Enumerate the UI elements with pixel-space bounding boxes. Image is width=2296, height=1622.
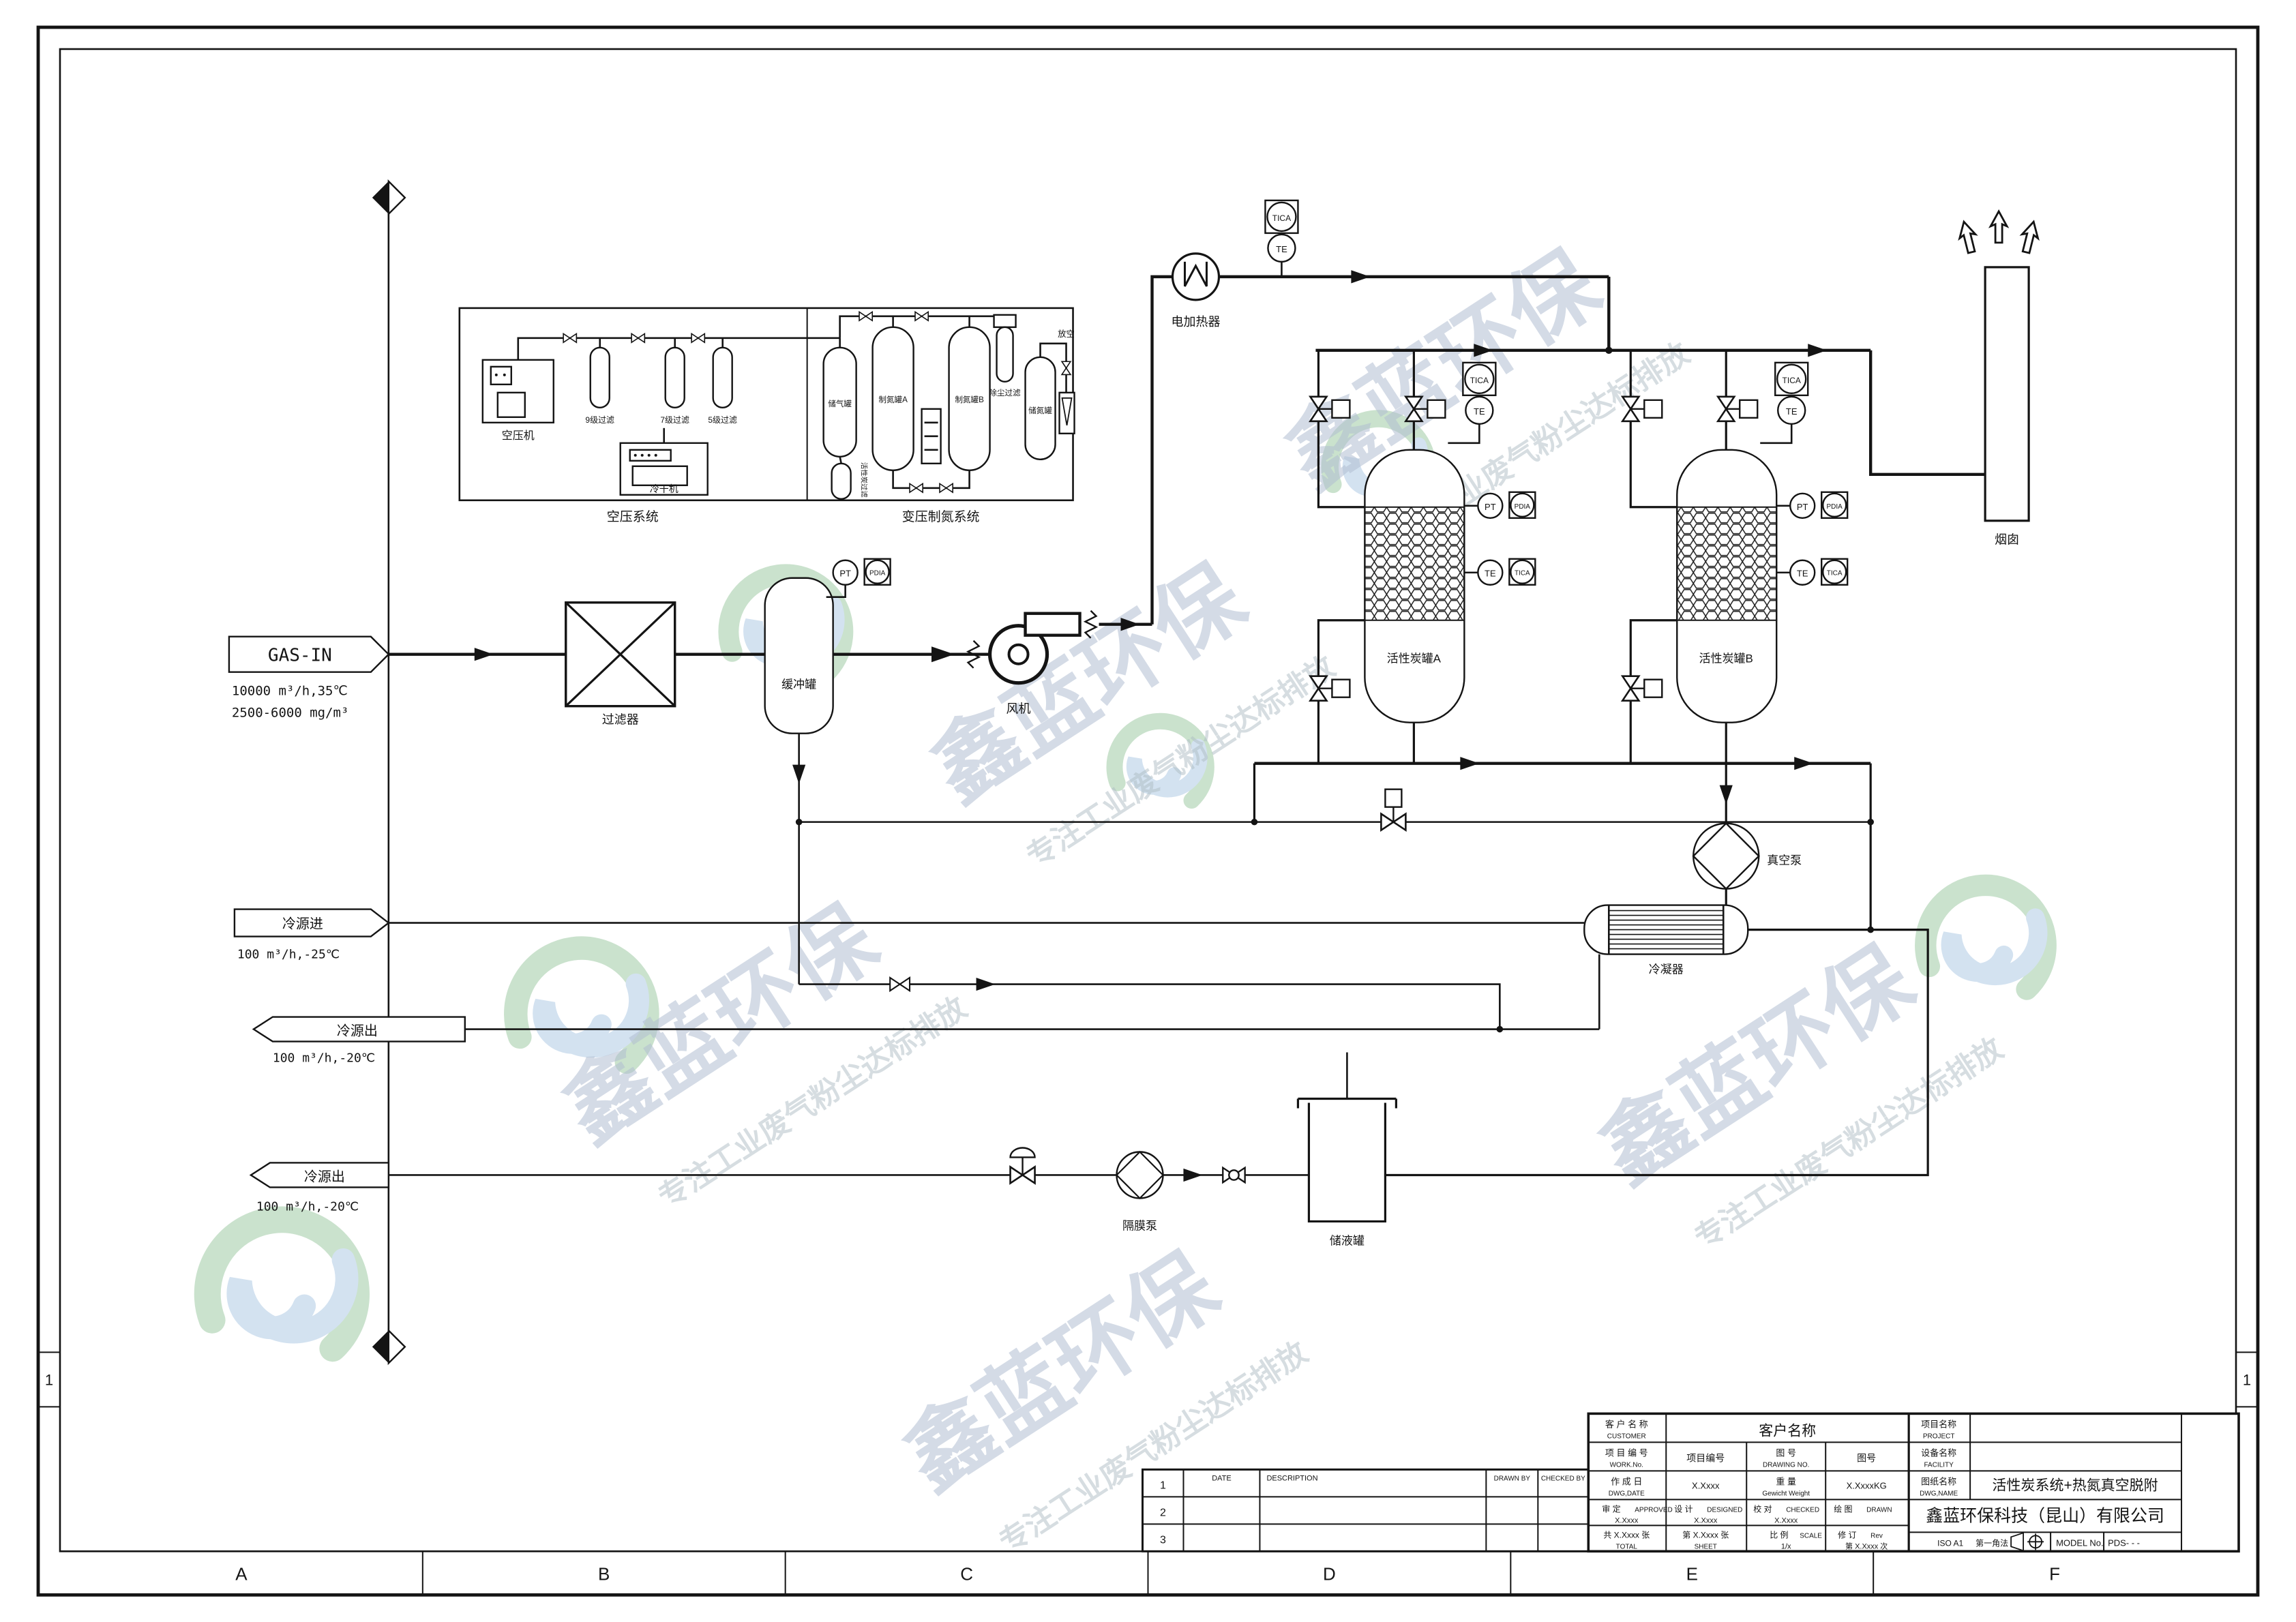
tb-approved-cn: 审 定: [1602, 1503, 1620, 1514]
tb-dwg-name-en: DWG,NAME: [1920, 1490, 1958, 1497]
tank-a-pdia-tag: PDIA: [1515, 503, 1531, 511]
tb-total-en: TOTAL: [1616, 1543, 1638, 1550]
rev-header-date: DATE: [1212, 1474, 1231, 1482]
buffer-pdia-tag: PDIA: [869, 570, 886, 577]
stack-symbol: [1985, 267, 2029, 521]
filter-symbol: [566, 603, 675, 706]
tb-model-label: MODEL No.: [2056, 1537, 2104, 1548]
tb-weight-cn: 重 量: [1776, 1476, 1796, 1486]
heater-symbol: [1172, 254, 1219, 300]
vacuum-pump-symbol: [1693, 824, 1759, 889]
grid-column-f: F: [2049, 1563, 2060, 1584]
tb-drawing-no-en: DRAWING NO.: [1763, 1461, 1809, 1469]
tank-b-te-tag: TE: [1786, 406, 1798, 417]
tb-company-name: 鑫蓝环保科技（昆山）有限公司: [1926, 1506, 2164, 1525]
filter-7-label: 7级过滤: [660, 415, 689, 425]
filter-label: 过滤器: [602, 713, 639, 727]
tb-work-no-value: 项目编号: [1686, 1452, 1725, 1463]
fan-label: 风机: [1007, 702, 1031, 716]
cold-out-upper-flow: 100 m³/h,-20℃: [273, 1051, 375, 1066]
tb-projection-label: 第一角法: [1976, 1538, 2008, 1548]
storage-tank-label: 储液罐: [1330, 1234, 1365, 1247]
air-system-caption: 空压系统: [607, 509, 659, 524]
carbon-filter-symbol: [832, 464, 851, 499]
dryer-label: 冷干机: [650, 483, 679, 494]
rotameter-symbol: [1060, 393, 1075, 434]
grid-column-c: C: [960, 1563, 973, 1584]
gas-in-tag: GAS-IN: [268, 646, 332, 666]
filter-9-symbol: [591, 348, 610, 408]
heater-label: 电加热器: [1172, 315, 1221, 329]
rev-row-3: 3: [1160, 1534, 1166, 1546]
rev-header-drawn-by: DRAWN BY: [1494, 1475, 1531, 1482]
tb-sheet-en: SHEET: [1695, 1543, 1717, 1550]
liquid-manual-valve: [1223, 1168, 1244, 1183]
condenser-label: 冷凝器: [1649, 963, 1684, 976]
page-background: [0, 0, 2296, 1622]
buffer-pt-tag: PT: [839, 569, 851, 579]
tb-weight-value: X.XxxxKG: [1847, 1480, 1887, 1490]
rev-header-checked-by: CHECKED BY: [1541, 1475, 1585, 1482]
tb-scale-value: 1/x: [1781, 1542, 1791, 1550]
tb-customer-en: CUSTOMER: [1607, 1432, 1646, 1440]
air-compressor-label: 空压机: [502, 430, 535, 442]
tb-checked-cn: 校 对: [1753, 1503, 1772, 1514]
tb-sheet-cn: 第 X.Xxxx 张: [1682, 1530, 1729, 1540]
tb-paper-size: ISO A1: [1937, 1538, 1963, 1548]
tank-a-tica-tag: TICA: [1470, 376, 1489, 385]
stack-label: 烟囱: [1995, 533, 2019, 547]
carbon-tank-a-bed: [1365, 507, 1464, 620]
tb-drawn-en: DRAWN: [1866, 1506, 1892, 1514]
tank-b-pdia-tag: PDIA: [1827, 503, 1843, 511]
tb-approved-value: X.Xxxx: [1615, 1516, 1639, 1525]
tb-customer-value: 客户名称: [1759, 1423, 1816, 1439]
tb-checked-en: CHECKED: [1786, 1506, 1819, 1514]
tb-designed-en: DESIGNED: [1707, 1506, 1742, 1514]
cold-in-flow: 100 m³/h,-25℃: [237, 948, 340, 962]
tb-designed-value: X.Xxxx: [1694, 1516, 1718, 1525]
tb-dwg-name-cn: 图纸名称: [1921, 1476, 1956, 1486]
grid-row-left: 1: [45, 1371, 53, 1388]
tb-facility-en: FACILITY: [1924, 1461, 1954, 1469]
condenser-symbol: [1584, 905, 1748, 955]
tank-b-tica2-tag: TICA: [1827, 570, 1843, 577]
tb-total-cn: 共 X.Xxxx 张: [1603, 1530, 1650, 1540]
vent-label: 放空: [1058, 329, 1075, 339]
dust-filter-cap: [994, 315, 1016, 327]
nitrogen-system-caption: 变压制氮系统: [902, 509, 980, 524]
tb-drawing-no-value: 图号: [1857, 1452, 1876, 1463]
pid-drawing-canvas: 鑫蓝环保 专注工业废气粉尘达标排放 鑫蓝环保 专注工业废气粉尘达标排放 鑫蓝环保…: [0, 0, 2296, 1622]
tank-a-te-tag: TE: [1474, 406, 1485, 417]
dust-filter-label: 除尘过滤: [989, 388, 1021, 397]
tank-b-pt-tag: PT: [1797, 502, 1808, 512]
tb-project-cn: 项目名称: [1921, 1419, 1956, 1429]
vacuum-pump-label: 真空泵: [1767, 854, 1802, 867]
gas-in-concentration: 2500-6000 mg/m³: [232, 706, 348, 721]
tb-designed-cn: 设 计: [1674, 1504, 1693, 1514]
tb-drawn-cn: 绘 图: [1834, 1503, 1852, 1514]
diaphragm-pump-label: 隔膜泵: [1122, 1219, 1157, 1232]
heater-tica-tag: TICA: [1272, 213, 1291, 223]
tank-a-te2-tag: TE: [1485, 569, 1496, 579]
air-compressor-symbol: [483, 360, 554, 423]
title-block: 客 户 名 称 CUSTOMER 客户名称 项 目 编 号 WORK.No. 项…: [1588, 1413, 2239, 1551]
dust-filter-symbol: [997, 327, 1013, 382]
rev-header-description: DESCRIPTION: [1266, 1474, 1317, 1482]
filter-5-symbol: [713, 348, 732, 408]
carbon-tank-a-label: 活性炭罐A: [1387, 652, 1442, 665]
tb-date-cn: 作 成 日: [1611, 1476, 1642, 1486]
filter-7-symbol: [666, 348, 685, 408]
tb-work-no-en: WORK.No.: [1610, 1461, 1643, 1469]
grid-column-b: B: [598, 1563, 610, 1584]
tank-a-pt-tag: PT: [1485, 502, 1496, 512]
tb-scale-en: SCALE: [1800, 1532, 1822, 1540]
buffer-tank-symbol: [765, 578, 833, 734]
grid-row-right: 1: [2243, 1371, 2251, 1388]
rev-row-1: 1: [1160, 1480, 1166, 1491]
filter-5-label: 5级过滤: [708, 415, 737, 425]
cold-out-upper-tag: 冷源出: [337, 1023, 378, 1039]
grid-column-e: E: [1686, 1563, 1698, 1584]
tank-a-tica2-tag: TICA: [1515, 570, 1530, 577]
tb-date-en: DWG,DATE: [1609, 1490, 1645, 1497]
n2-tank-a-label: 制氮罐A: [878, 395, 908, 404]
tank-b-te2-tag: TE: [1797, 569, 1808, 579]
tb-checked-value: X.Xxxx: [1774, 1516, 1798, 1525]
tank-b-tica-tag: TICA: [1783, 376, 1801, 385]
tb-weight-en: Gewicht Weight: [1762, 1490, 1810, 1497]
tb-rev-cn: 修 订: [1838, 1529, 1856, 1540]
tb-rev-value: 第 X.Xxxx 次: [1845, 1541, 1888, 1550]
cold-in-tag: 冷源进: [282, 916, 323, 932]
tb-date-value: X.Xxxx: [1692, 1480, 1720, 1490]
tb-project-en: PROJECT: [1923, 1432, 1955, 1440]
heater-te-tag: TE: [1276, 244, 1287, 254]
gas-in-flow: 10000 m³/h,35℃: [232, 684, 348, 699]
tb-scale-cn: 比 例: [1770, 1530, 1788, 1540]
carbon-tank-b-bed: [1677, 507, 1776, 620]
tb-model-value: PDS- - -: [2108, 1537, 2140, 1548]
buffer-tank-label: 缓冲罐: [781, 678, 816, 691]
n2-tank-b-label: 制氮罐B: [955, 395, 984, 404]
air-tank-label: 储气罐: [828, 399, 852, 408]
tb-facility-cn: 设备名称: [1921, 1447, 1956, 1458]
diaphragm-pump-symbol: [1117, 1152, 1163, 1198]
grid-column-d: D: [1323, 1563, 1336, 1584]
tb-approved-en: APPROVED: [1635, 1506, 1673, 1514]
tb-customer-cn: 客 户 名 称: [1605, 1419, 1648, 1429]
cold-out-lower-flow: 100 m³/h,-20℃: [256, 1199, 359, 1214]
n2-storage-label: 储氮罐: [1028, 406, 1052, 415]
tb-drawing-no-cn: 图 号: [1776, 1447, 1796, 1458]
revision-table: 1 2 3 DATE DESCRIPTION DRAWN BY CHECKED …: [1143, 1469, 1589, 1551]
tb-rev-en: Rev: [1870, 1532, 1883, 1540]
tb-dwg-name-value: 活性炭系统+热氮真空脱附: [1993, 1477, 2158, 1493]
tb-work-no-cn: 项 目 编 号: [1605, 1447, 1648, 1458]
filter-9-label: 9级过滤: [585, 415, 614, 425]
rev-row-2: 2: [1160, 1507, 1166, 1518]
cold-out-lower-tag: 冷源出: [304, 1169, 345, 1184]
carbon-tank-b-label: 活性炭罐B: [1699, 652, 1753, 665]
grid-column-a: A: [235, 1563, 248, 1584]
